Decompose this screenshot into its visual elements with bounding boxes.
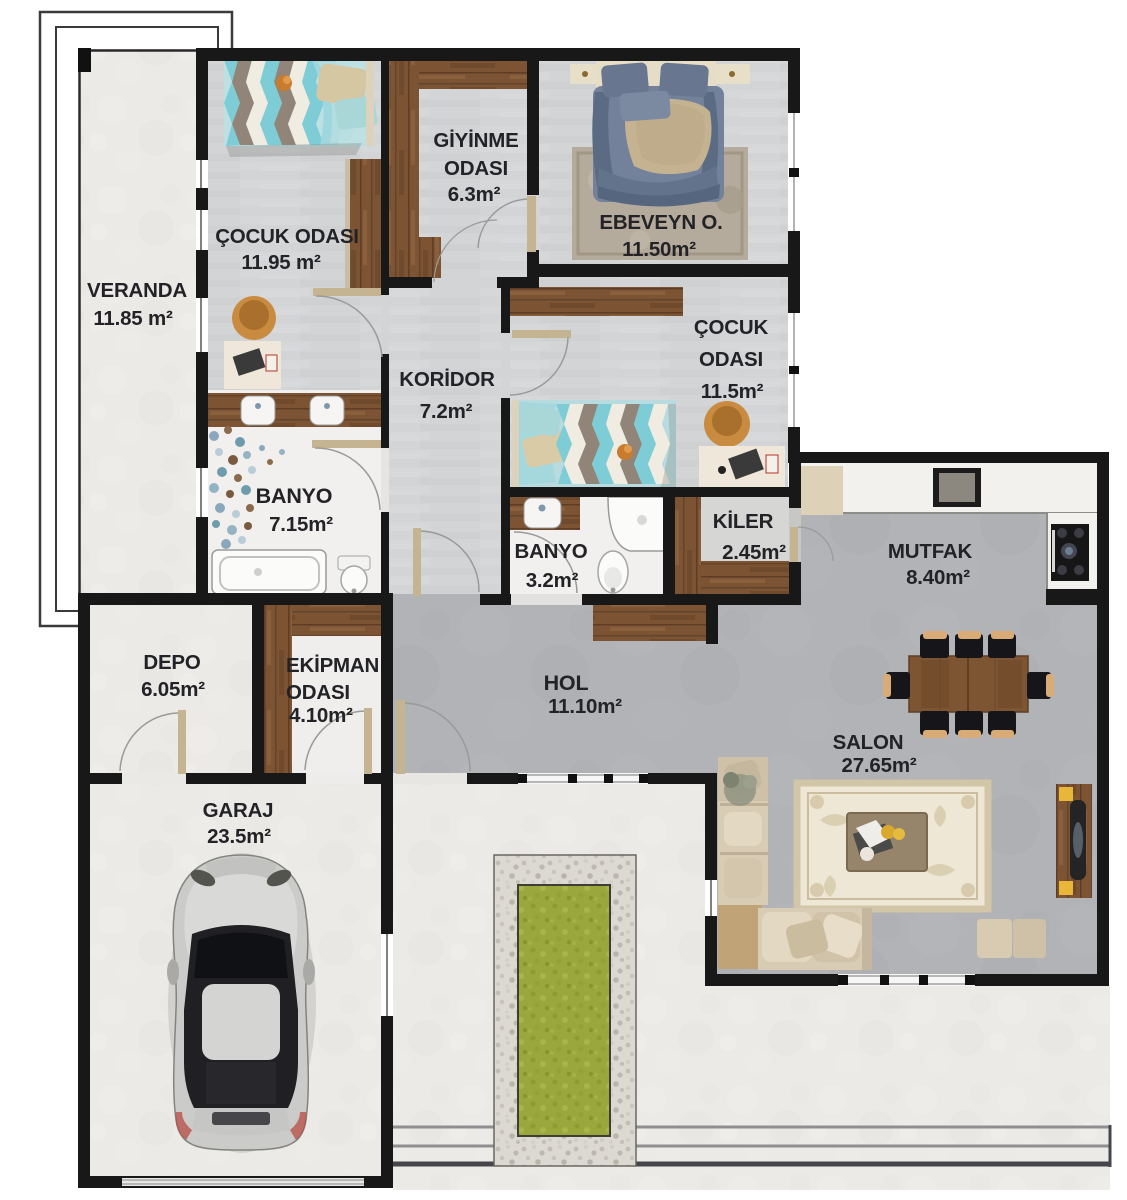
svg-text:KORİDOR: KORİDOR bbox=[399, 368, 495, 391]
svg-text:EBEVEYN O.: EBEVEYN O. bbox=[599, 211, 722, 234]
svg-text:VERANDA: VERANDA bbox=[87, 279, 187, 302]
svg-text:ODASI: ODASI bbox=[444, 157, 508, 180]
svg-text:11.95 m²: 11.95 m² bbox=[241, 251, 321, 274]
svg-text:27.65m²: 27.65m² bbox=[842, 754, 917, 777]
svg-text:23.5m²: 23.5m² bbox=[207, 825, 271, 848]
svg-text:GARAJ: GARAJ bbox=[203, 799, 274, 822]
svg-text:ODASI: ODASI bbox=[286, 681, 350, 704]
svg-text:ODASI: ODASI bbox=[699, 348, 763, 371]
svg-text:11.50m²: 11.50m² bbox=[622, 238, 696, 261]
svg-text:MUTFAK: MUTFAK bbox=[888, 540, 973, 563]
svg-text:4.10m²: 4.10m² bbox=[289, 704, 353, 727]
svg-text:GİYİNME: GİYİNME bbox=[433, 129, 518, 152]
svg-text:EKİPMAN: EKİPMAN bbox=[286, 654, 379, 677]
svg-text:11.5m²: 11.5m² bbox=[701, 380, 764, 403]
svg-text:8.40m²: 8.40m² bbox=[906, 566, 970, 589]
svg-text:7.2m²: 7.2m² bbox=[420, 400, 473, 423]
svg-text:2.45m²: 2.45m² bbox=[722, 541, 786, 564]
svg-text:BANYO: BANYO bbox=[256, 484, 333, 508]
svg-text:ÇOCUK: ÇOCUK bbox=[694, 316, 769, 339]
svg-text:3.2m²: 3.2m² bbox=[526, 569, 579, 592]
svg-text:DEPO: DEPO bbox=[143, 651, 201, 674]
svg-text:BANYO: BANYO bbox=[514, 540, 587, 563]
svg-text:ÇOCUK ODASI: ÇOCUK ODASI bbox=[215, 225, 359, 248]
svg-text:7.15m²: 7.15m² bbox=[269, 513, 333, 536]
svg-text:11.85 m²: 11.85 m² bbox=[93, 307, 173, 330]
svg-text:11.10m²: 11.10m² bbox=[548, 695, 622, 718]
svg-text:HOL: HOL bbox=[544, 671, 589, 695]
svg-text:6.05m²: 6.05m² bbox=[141, 678, 205, 701]
svg-text:6.3m²: 6.3m² bbox=[448, 183, 501, 206]
svg-text:SALON: SALON bbox=[833, 731, 904, 754]
svg-text:KİLER: KİLER bbox=[713, 510, 774, 533]
